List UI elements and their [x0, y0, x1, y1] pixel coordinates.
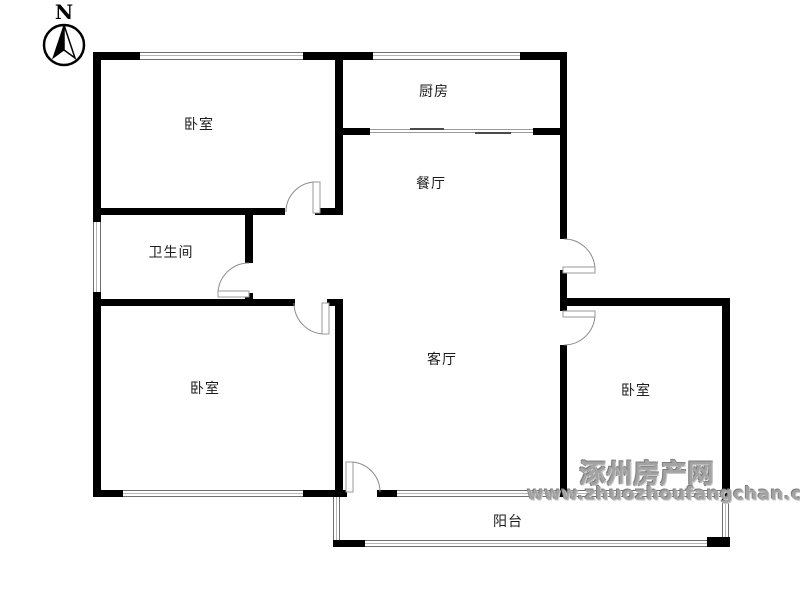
door-bedroom-bottom-left-leaf: [322, 303, 329, 334]
compass-needle-dark: [53, 25, 64, 58]
door-bedroom-bottom-left-swing-arc: [294, 303, 325, 334]
floor-plan: 卧室厨房餐厅卫生间卧室客厅卧室阳台 N 涿州房产网 www.zhuozhoufa…: [0, 0, 800, 600]
watermark-site-url: www.zhuozhoufangchan.com: [527, 484, 800, 505]
door-bedroom-top-left-swing-arc: [286, 182, 316, 212]
door-entry-leaf: [563, 267, 595, 273]
door-bedroom-right-leaf: [563, 311, 595, 317]
door-layer: [0, 0, 800, 600]
door-balcony-leaf: [346, 462, 353, 492]
room-label-bedroom-top-left: 卧室: [184, 114, 214, 134]
room-label-living-room: 客厅: [427, 349, 457, 369]
compass-needle-light: [64, 25, 75, 58]
room-label-dining-room: 餐厅: [416, 173, 446, 193]
room-label-bedroom-bottom-left: 卧室: [190, 378, 220, 398]
door-entry-swing-arc: [564, 239, 595, 270]
door-balcony-swing-arc: [350, 462, 380, 492]
door-bathroom-swing-arc: [218, 263, 249, 294]
door-bedroom-top-left-leaf: [313, 182, 320, 213]
door-bathroom-leaf: [218, 291, 249, 297]
room-label-bedroom-right: 卧室: [621, 380, 651, 400]
room-label-balcony: 阳台: [493, 511, 523, 531]
room-label-bathroom: 卫生间: [149, 242, 194, 262]
door-bedroom-right-swing-arc: [564, 314, 595, 345]
room-label-kitchen: 厨房: [419, 81, 449, 101]
north-compass-icon: [0, 0, 130, 90]
